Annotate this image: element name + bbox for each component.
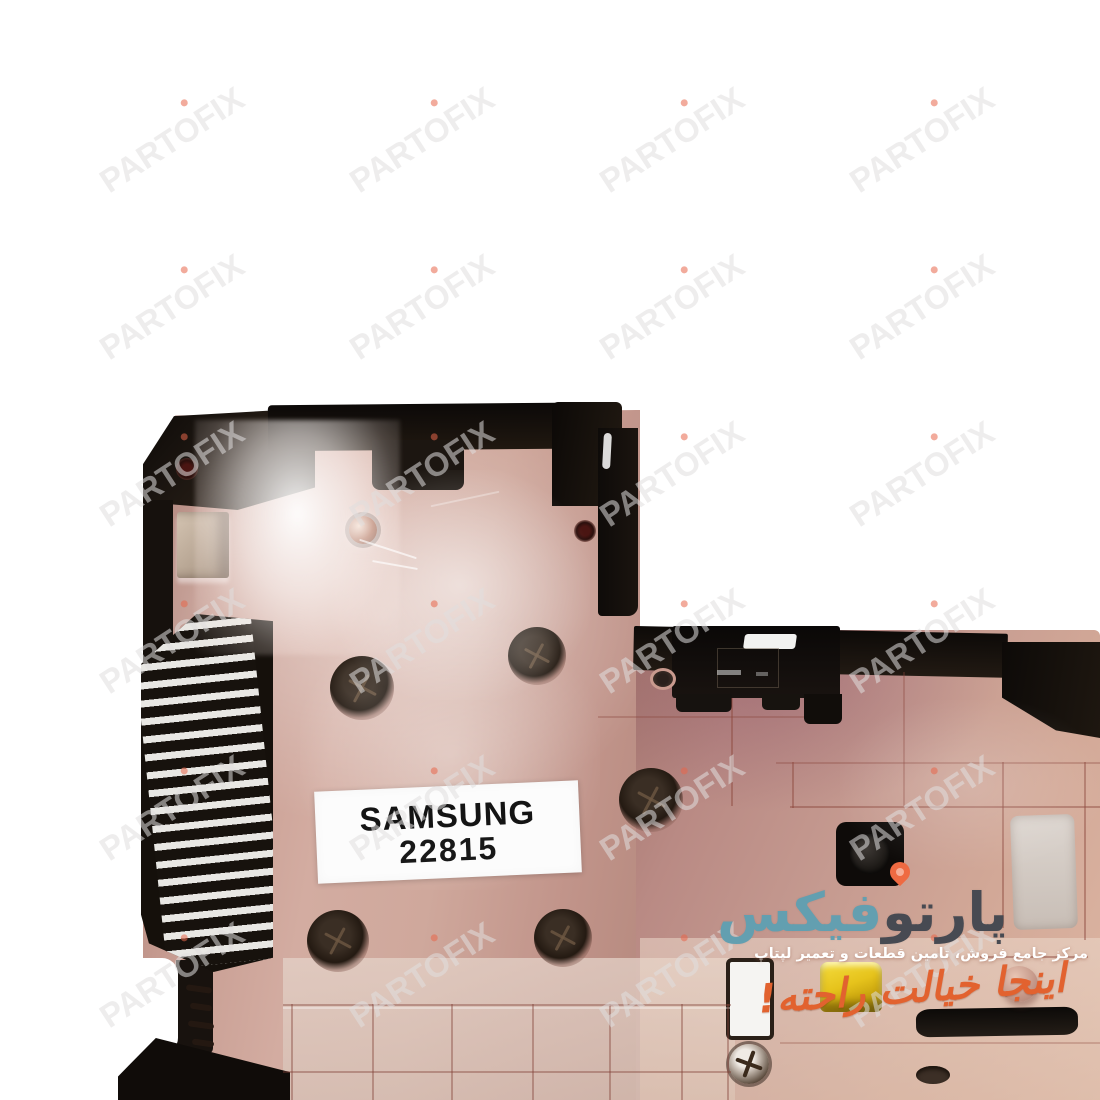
vent-slats (141, 617, 273, 970)
vent-grille (141, 614, 273, 972)
connector-block (672, 626, 840, 698)
connector-white-slot (743, 634, 797, 649)
bay-gridline (727, 1004, 729, 1100)
left-edge-notch (128, 958, 178, 1054)
connector-contact (717, 670, 741, 675)
top-edge-block (372, 440, 464, 490)
panel-seam (792, 762, 794, 808)
product-photo: SAMSUNG 22815 PARTOFIXPARTOFIXPARTOFIXPA… (0, 0, 1100, 1100)
screw-hole (330, 656, 394, 720)
logo-tagline: اینجا خیالت راحته! (757, 955, 1067, 1022)
partofix-logo: پارتوفیکس مرکز جامع فروش، تامین قطعات و … (744, 862, 1094, 1062)
logo-name-teal: فیکس (717, 881, 882, 944)
latch-block (177, 512, 229, 578)
panel-seam (776, 762, 1100, 764)
screw (176, 458, 198, 480)
screw (574, 520, 596, 542)
panel-seam (598, 716, 804, 718)
panel-seam (903, 672, 905, 806)
pin-hole (894, 866, 905, 877)
bay-gridline (532, 1004, 534, 1100)
bay-gridline (283, 1004, 731, 1006)
connector-frame (717, 648, 779, 688)
bay-gridline-highlight (283, 1007, 731, 1009)
bay-gridline (372, 1004, 374, 1100)
label-brand: SAMSUNG (359, 795, 536, 836)
screw-hole (307, 910, 369, 972)
screw-hole (619, 768, 683, 832)
panel-seam (731, 698, 733, 806)
logo-title: پارتوفیکس (717, 882, 1008, 944)
connector-contact (756, 672, 768, 676)
hinge-hole (650, 668, 676, 690)
logo-name-dark: پارتو (882, 881, 1008, 944)
small-hole (916, 1066, 950, 1084)
bay-gridline (291, 1004, 293, 1100)
screw-hole (508, 627, 566, 685)
panel-seam (790, 806, 1100, 808)
connector-tooth (762, 694, 800, 710)
connector-tooth (676, 694, 732, 712)
bay-gridline (609, 1004, 611, 1100)
screw-hole (534, 909, 592, 967)
bay-gridline (451, 1004, 453, 1100)
connector-foot (804, 694, 842, 724)
model-label: SAMSUNG 22815 (314, 780, 582, 883)
bay-gridline (681, 1004, 683, 1100)
bay-gridline (283, 1071, 731, 1073)
label-number: 22815 (399, 831, 499, 867)
